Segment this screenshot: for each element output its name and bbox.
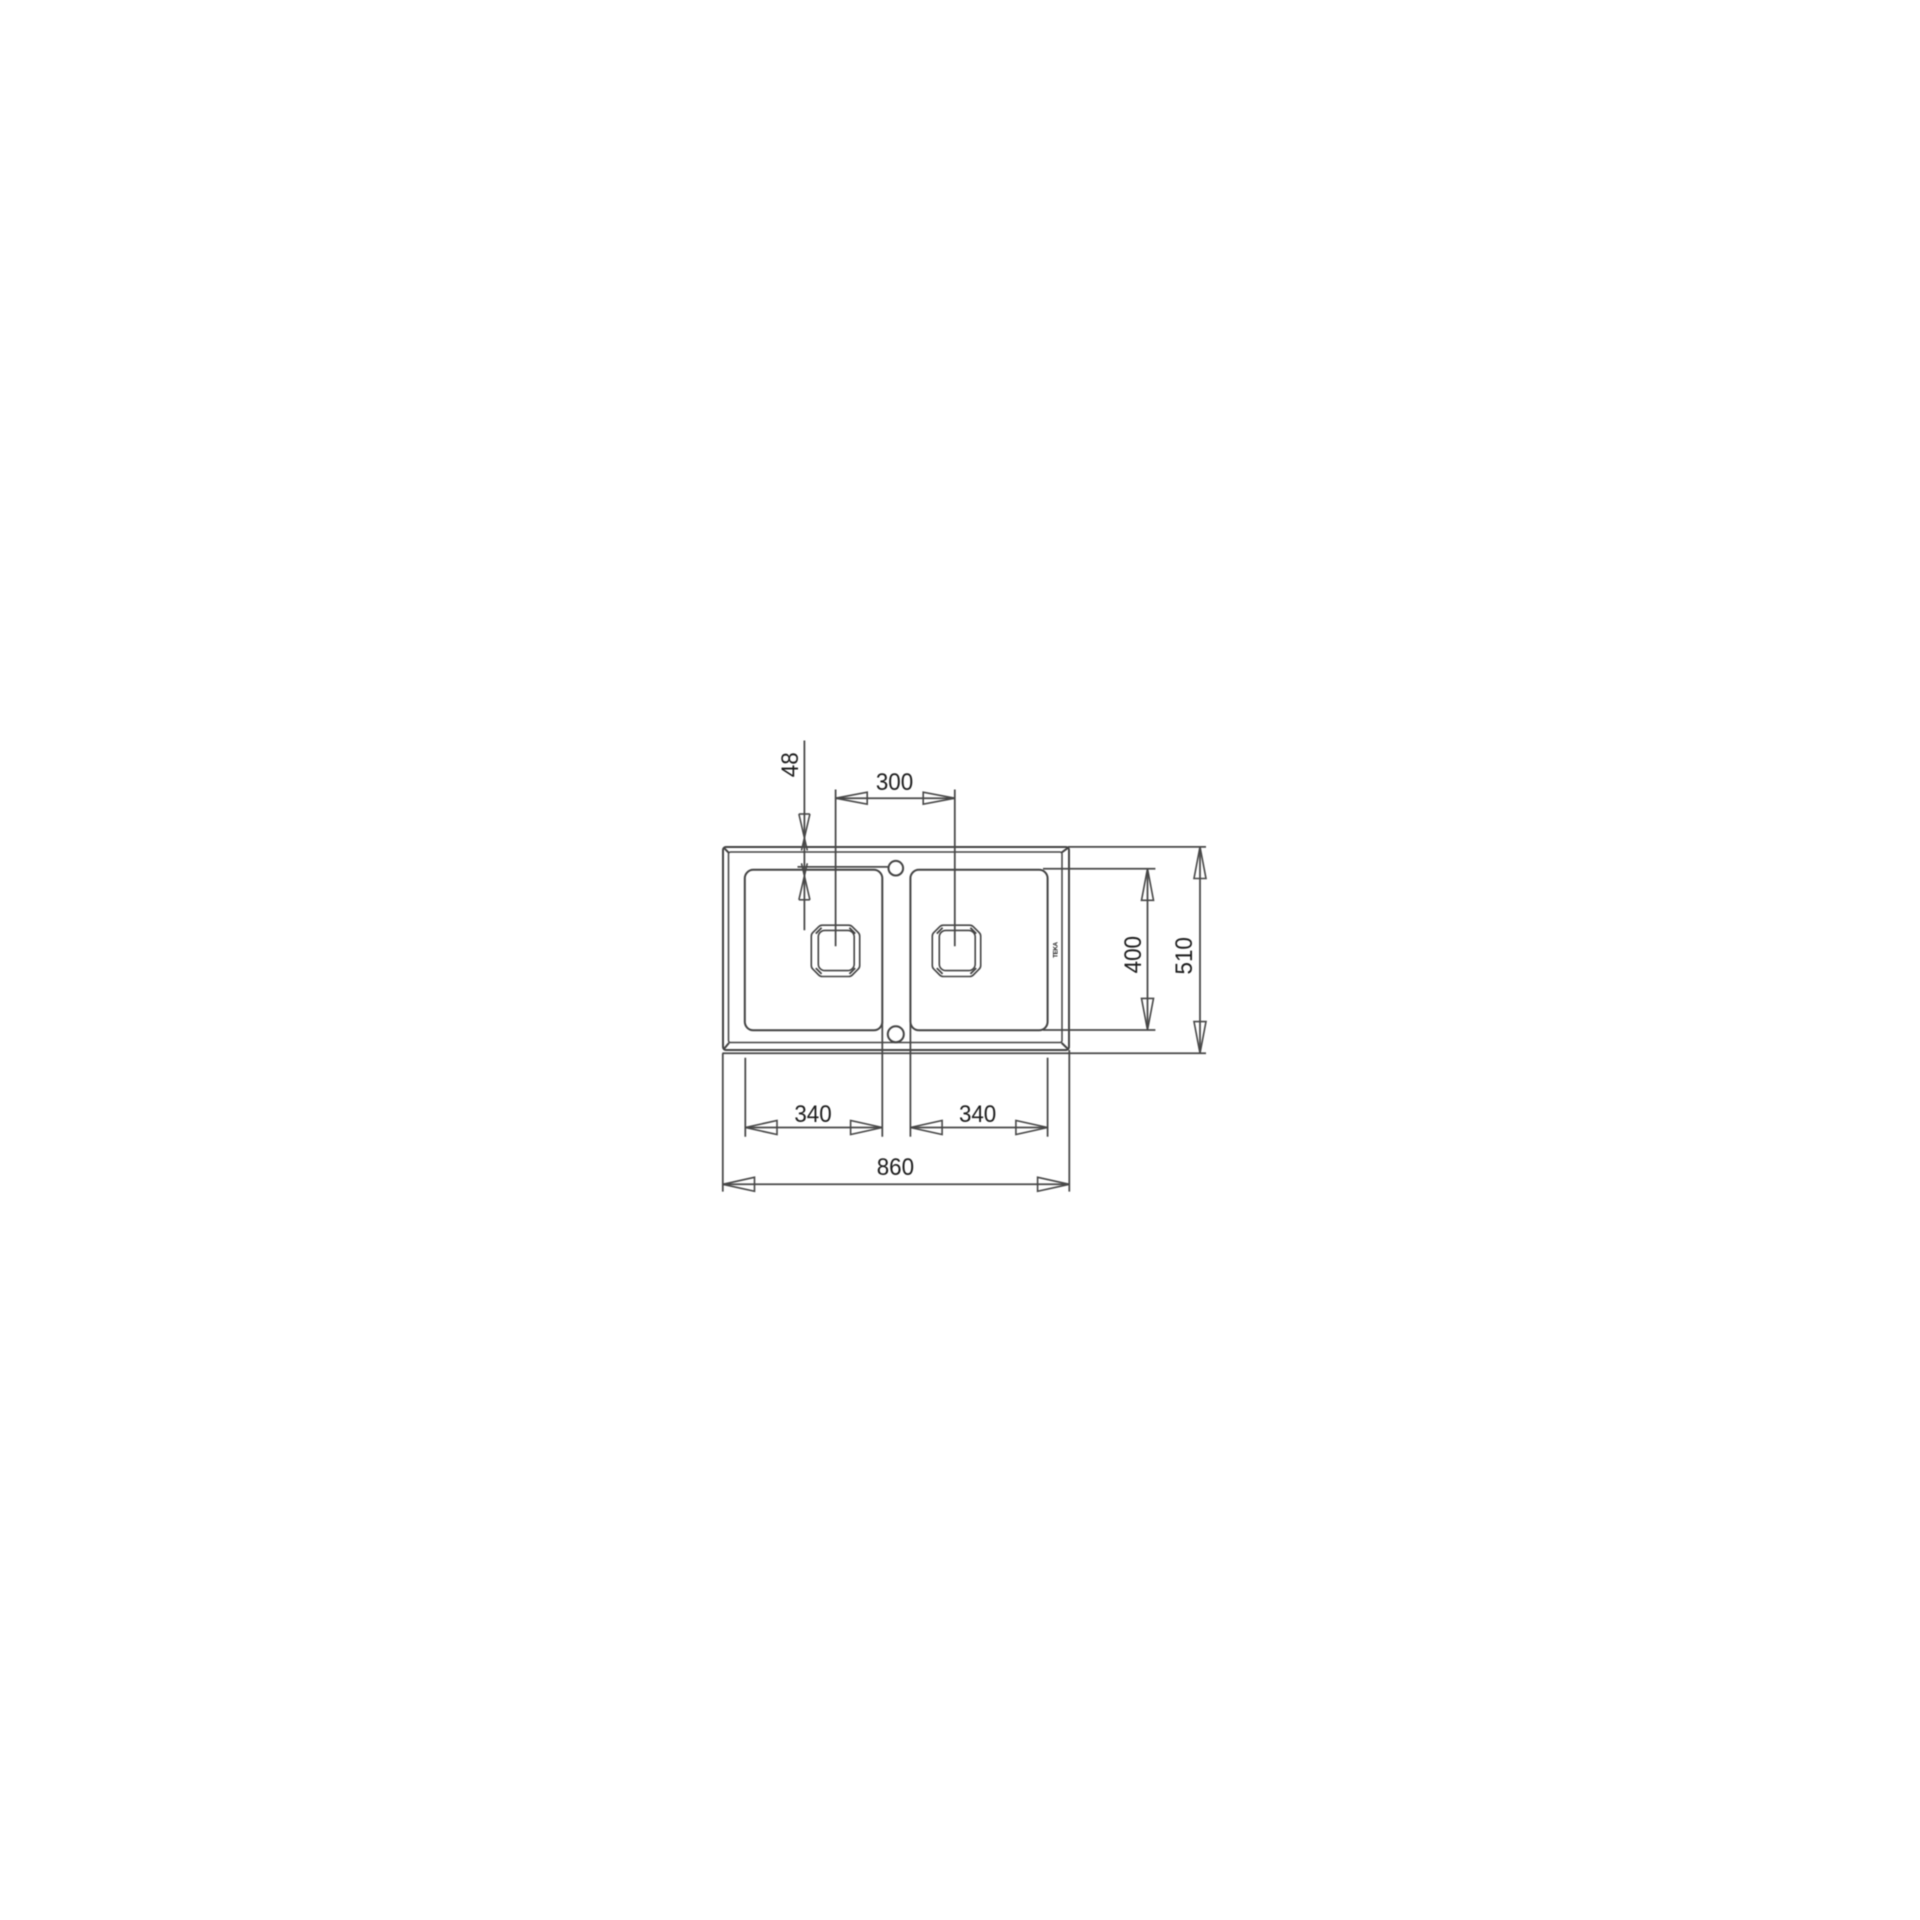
svg-text:48: 48: [777, 752, 804, 777]
svg-text:TEKA: TEKA: [1053, 941, 1060, 957]
svg-text:300: 300: [876, 769, 913, 796]
svg-text:860: 860: [877, 1154, 914, 1181]
svg-text:400: 400: [1120, 936, 1147, 973]
svg-text:510: 510: [1171, 937, 1198, 974]
svg-text:340: 340: [959, 1101, 996, 1128]
svg-text:340: 340: [794, 1101, 831, 1128]
